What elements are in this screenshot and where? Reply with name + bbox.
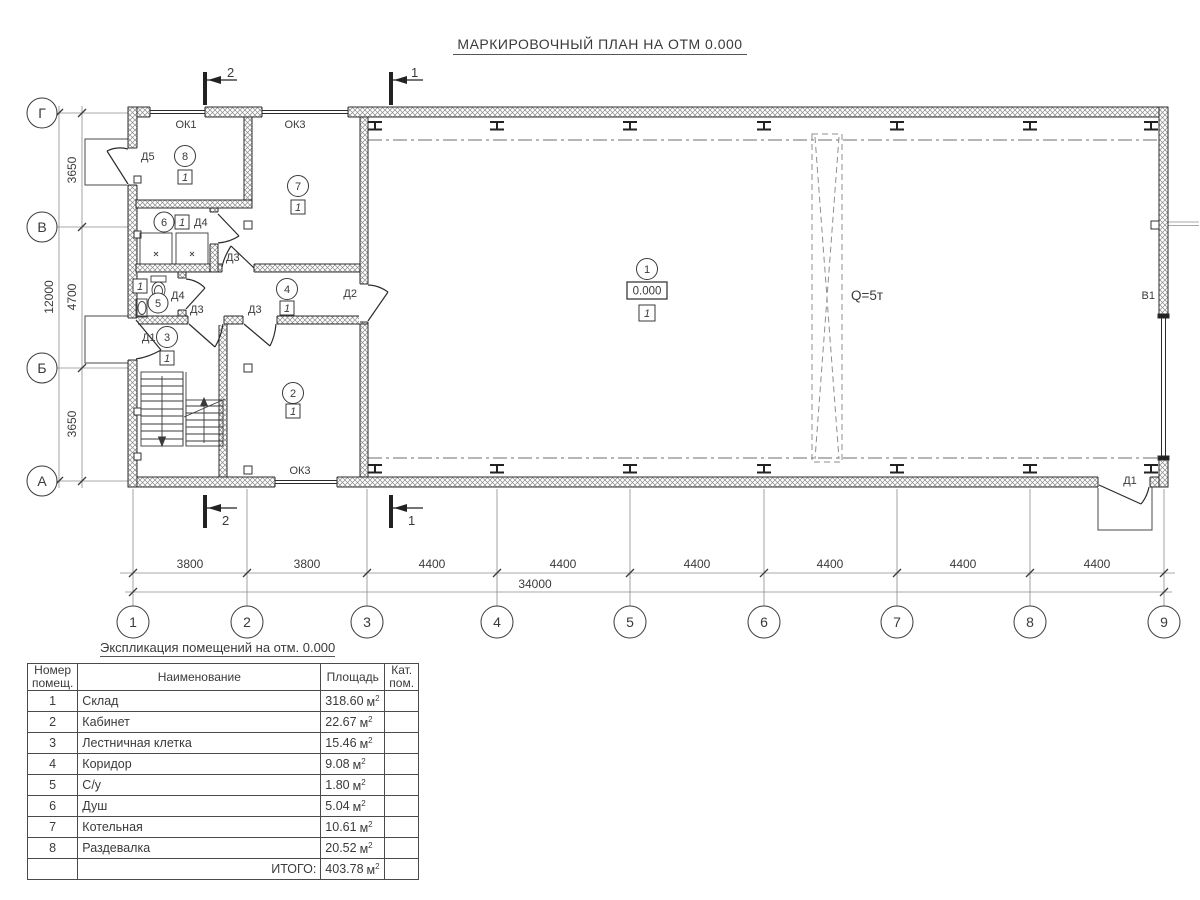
- section-mark-number: 2: [222, 513, 229, 528]
- room-num: 8: [28, 838, 78, 859]
- axis-number: 4: [493, 614, 501, 630]
- category-marker: 1: [284, 303, 290, 315]
- axis-number: 6: [760, 614, 768, 630]
- door-label-d1: Д1: [142, 332, 156, 344]
- dim-bottom-4: 4400: [550, 557, 577, 571]
- window-label-ok3: ОК3: [289, 465, 310, 477]
- category-marker: 1: [290, 406, 296, 418]
- dim-bottom-6: 4400: [817, 557, 844, 571]
- axis-number: 9: [1160, 614, 1168, 630]
- header-room-area: Площадь: [321, 664, 385, 691]
- crane-bridge: [812, 134, 842, 462]
- room-num: 1: [28, 691, 78, 712]
- table-header-row: Номер помещ. Наименование Площадь Кат. п…: [28, 664, 419, 691]
- room-number: 6: [161, 217, 167, 229]
- door-label-d3: Д3: [248, 304, 262, 316]
- table-row: 6 Душ 5.04м2: [28, 796, 419, 817]
- dim-bottom-1: 3800: [177, 557, 204, 571]
- axis-number: 8: [1026, 614, 1034, 630]
- room-area: 20.52м2: [321, 838, 385, 859]
- room-bubbles: [133, 146, 667, 419]
- steel-columns: [368, 122, 1158, 473]
- dim-bottom-8: 4400: [1084, 557, 1111, 571]
- header-room-number: Номер помещ.: [28, 664, 78, 691]
- door-leaves: [107, 148, 1149, 504]
- table-row: 2 Кабинет 22.67м2: [28, 712, 419, 733]
- dim-left-total: 12000: [42, 280, 56, 314]
- header-room-cat: Кат. пом.: [385, 664, 419, 691]
- room-number: 1: [644, 264, 650, 276]
- room-cat: [385, 754, 419, 775]
- room-number: 5: [155, 298, 161, 310]
- category-marker: 1: [644, 308, 650, 320]
- total-label: ИТОГО:: [78, 859, 321, 880]
- room-num: 3: [28, 733, 78, 754]
- window-label-ok3: ОК3: [284, 119, 305, 131]
- axis-letter: А: [37, 473, 47, 489]
- door-label-d2: Д2: [343, 288, 357, 300]
- room-name: Кабинет: [78, 712, 321, 733]
- category-marker: 1: [182, 172, 188, 184]
- explication-title: Экспликация помещений на отм. 0.000: [100, 640, 335, 657]
- axis-letter: Б: [37, 360, 46, 376]
- total-area: 403.78м2: [321, 859, 385, 880]
- gate-label-v1: В1: [1142, 290, 1155, 302]
- room-number: 7: [295, 181, 301, 193]
- window-label-ok1: ОК1: [175, 119, 196, 131]
- table-row: 7 Котельная 10.61м2: [28, 817, 419, 838]
- room-area: 318.60м2: [321, 691, 385, 712]
- section-marks: 2 1 2 1: [205, 65, 423, 528]
- axis-number: 7: [893, 614, 901, 630]
- crane-capacity-label: Q=5т: [851, 288, 883, 303]
- room-cat: [385, 796, 419, 817]
- dim-bottom-7: 4400: [950, 557, 977, 571]
- room-name: Душ: [78, 796, 321, 817]
- section-mark-number: 2: [227, 65, 234, 80]
- category-marker: 1: [295, 202, 301, 214]
- table-total-row: ИТОГО: 403.78м2: [28, 859, 419, 880]
- room-name: Склад: [78, 691, 321, 712]
- category-marker: 1: [179, 217, 185, 229]
- room-num: 2: [28, 712, 78, 733]
- room-number: 8: [182, 151, 188, 163]
- axis-letter: Г: [38, 105, 46, 121]
- room-cat: [385, 691, 419, 712]
- room-num: 5: [28, 775, 78, 796]
- axis-number: 5: [626, 614, 634, 630]
- table-row: 4 Коридор 9.08м2: [28, 754, 419, 775]
- dim-bottom-3: 4400: [419, 557, 446, 571]
- room-area: 1.80м2: [321, 775, 385, 796]
- door-label-d4: Д4: [171, 290, 185, 302]
- section-mark-number: 1: [408, 513, 415, 528]
- drawing-sheet: МАРКИРОВОЧНЫЙ ПЛАН НА ОТМ 0.000 3650 470…: [0, 0, 1200, 900]
- dim-left-3: 3650: [65, 410, 79, 437]
- axis-grid: [57, 106, 1199, 606]
- room-name: Раздевалка: [78, 838, 321, 859]
- room-area: 5.04м2: [321, 796, 385, 817]
- shower-stalls: [140, 233, 208, 264]
- room-area: 9.08м2: [321, 754, 385, 775]
- axis-letter: В: [37, 219, 46, 235]
- room-num: 4: [28, 754, 78, 775]
- room-area: 15.46м2: [321, 733, 385, 754]
- floor-plan: 3650 4700 3650 12000 3800 3800 4400 4400…: [0, 0, 1200, 645]
- room-num: 7: [28, 817, 78, 838]
- door-label-d4: Д4: [194, 217, 208, 229]
- table-row: 1 Склад 318.60м2: [28, 691, 419, 712]
- room-area: 10.61м2: [321, 817, 385, 838]
- table-row: 5 С/у 1.80м2: [28, 775, 419, 796]
- room-cat: [385, 712, 419, 733]
- dim-bottom-5: 4400: [684, 557, 711, 571]
- room-num: 6: [28, 796, 78, 817]
- room-name: Коридор: [78, 754, 321, 775]
- header-room-name: Наименование: [78, 664, 321, 691]
- room-cat: [385, 775, 419, 796]
- room-cat: [385, 817, 419, 838]
- category-marker: 1: [137, 281, 143, 293]
- dim-bottom-2: 3800: [294, 557, 321, 571]
- door-label-d3: Д3: [190, 304, 204, 316]
- room-name: Лестничная клетка: [78, 733, 321, 754]
- table-row: 3 Лестничная клетка 15.46м2: [28, 733, 419, 754]
- door-label-d1: Д1: [1123, 475, 1137, 487]
- category-marker: 1: [164, 353, 170, 365]
- pilasters: [134, 176, 1159, 474]
- dim-bottom-total: 34000: [518, 577, 552, 591]
- dim-left-1: 3650: [65, 156, 79, 183]
- total-empty: [28, 859, 78, 880]
- room-cat: [385, 733, 419, 754]
- room-name: С/у: [78, 775, 321, 796]
- door-label-d3: Д3: [226, 252, 240, 264]
- explication-table: Номер помещ. Наименование Площадь Кат. п…: [27, 663, 419, 880]
- room-number: 2: [290, 388, 296, 400]
- crane-rails: [368, 140, 1158, 458]
- door-label-d5: Д5: [141, 151, 155, 163]
- table-row: 8 Раздевалка 20.52м2: [28, 838, 419, 859]
- elevation-label: 0.000: [633, 286, 662, 298]
- axis-number: 2: [243, 614, 251, 630]
- room-number: 4: [284, 284, 290, 296]
- sink: [136, 299, 147, 317]
- axis-number: 1: [129, 614, 137, 630]
- room-area: 22.67м2: [321, 712, 385, 733]
- section-mark-number: 1: [411, 65, 418, 80]
- room-name: Котельная: [78, 817, 321, 838]
- total-cat-empty: [385, 859, 419, 880]
- room-cat: [385, 838, 419, 859]
- room-number: 3: [164, 332, 170, 344]
- staircase: [141, 372, 225, 446]
- dim-left-2: 4700: [65, 283, 79, 310]
- axis-number: 3: [363, 614, 371, 630]
